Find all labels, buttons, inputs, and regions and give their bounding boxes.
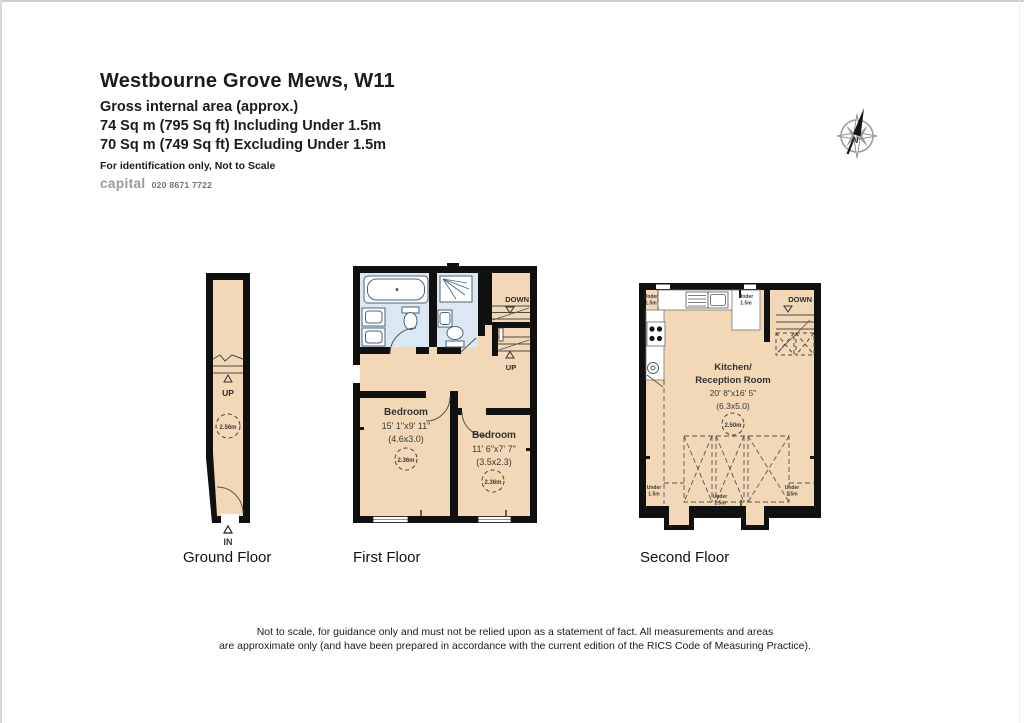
- ground-hallway: [213, 280, 243, 516]
- dormer-recess: [669, 506, 689, 525]
- agency-logo: capital: [100, 176, 146, 191]
- kitchen-dims-imperial: 20' 8"x16' 5": [710, 388, 757, 398]
- window-icon: [656, 285, 670, 290]
- svg-text:1.5m: 1.5m: [786, 492, 798, 498]
- compass-north-label: N: [852, 135, 859, 145]
- first-floor-plan: DOWN UP Bed: [352, 262, 542, 547]
- kitchen-sink-icon: [686, 292, 728, 308]
- window-icon: [744, 285, 756, 290]
- second-floor-plan: DOWN Kitchen/ Reception Room 20' 8"x16' …: [636, 278, 826, 534]
- bedroom-right-name: Bedroom: [472, 430, 516, 441]
- first-down-label: DOWN: [505, 295, 529, 304]
- disclaimer-line1: Not to scale, for guidance only and must…: [120, 625, 910, 639]
- bedroom-left-name: Bedroom: [384, 407, 428, 418]
- area-excluding: 70 Sq m (749 Sq ft) Excluding Under 1.5m: [100, 137, 395, 153]
- svg-text:1.5m: 1.5m: [648, 492, 660, 498]
- svg-text:Under: Under: [647, 485, 662, 491]
- entrance-opening: [221, 514, 239, 524]
- ground-floor-label: Ground Floor: [183, 549, 271, 566]
- bedroom-left-height-value: 2.36m: [397, 458, 414, 464]
- svg-text:Under: Under: [785, 485, 800, 491]
- second-down-label: DOWN: [788, 295, 812, 304]
- compass-icon: N: [830, 100, 886, 170]
- first-floor-label: First Floor: [353, 549, 421, 566]
- gross-area-subtitle: Gross internal area (approx.): [100, 99, 395, 115]
- toilet-icon: [446, 327, 464, 348]
- kitchen-name-line2: Reception Room: [695, 375, 770, 386]
- bathtub-icon: [364, 276, 428, 303]
- kitchen-name-line1: Kitchen/: [714, 362, 752, 373]
- landing-door: [499, 328, 503, 341]
- under-height-label: Under 1.5m: [644, 294, 659, 307]
- area-including: 74 Sq m (795 Sq ft) Including Under 1.5m: [100, 118, 395, 134]
- sink-icon: [438, 310, 452, 327]
- agency-phone: 020 8671 7722: [152, 180, 213, 190]
- shower-icon: [440, 276, 472, 302]
- window-icon: [373, 517, 408, 523]
- kitchen-height-value: 2.50m: [724, 423, 741, 429]
- disclaimer-line2: are approximate only (and have been prep…: [120, 639, 910, 653]
- svg-text:1.5m: 1.5m: [740, 301, 752, 307]
- svg-text:1.5m: 1.5m: [645, 301, 657, 307]
- svg-text:1.5m: 1.5m: [714, 501, 726, 507]
- header: Westbourne Grove Mews, W11 Gross interna…: [100, 70, 395, 172]
- under-height-label: Under 1.5m: [647, 485, 662, 498]
- page-title: Westbourne Grove Mews, W11: [100, 70, 395, 93]
- bedroom-right-dims-imperial: 11' 6"x7' 7": [472, 444, 516, 454]
- identification-note: For identification only, Not to Scale: [100, 160, 395, 172]
- ground-in-label: IN: [224, 537, 233, 546]
- agency-brand: capital 020 8671 7722: [100, 176, 212, 191]
- scan-edge-left: [0, 0, 2, 723]
- bedroom-left-dims-metric: (4.6x3.0): [388, 434, 424, 444]
- window-icon: [478, 517, 511, 523]
- scan-edge-right: [1019, 0, 1020, 723]
- scan-edge-top: [0, 0, 1024, 2]
- dormer-recess: [746, 506, 764, 525]
- bedroom-right-height-value: 2.36m: [484, 480, 501, 486]
- wall-recess: [353, 365, 360, 383]
- entrance-arrow-icon: [224, 526, 232, 533]
- under-height-label: Under 1.5m: [739, 294, 754, 307]
- svg-text:Under: Under: [713, 494, 728, 500]
- hob-icon: [647, 322, 665, 346]
- ground-up-label: UP: [222, 388, 234, 398]
- ground-floor-plan: UP 2.56m IN: [202, 268, 258, 546]
- under-height-label: Under 1.5m: [713, 494, 728, 507]
- kitchen-dims-metric: (6.3x5.0): [716, 401, 750, 411]
- bedroom-left-dims-imperial: 15' 1"x9' 11": [382, 421, 431, 431]
- svg-text:Under: Under: [644, 294, 659, 300]
- ground-height-value: 2.56m: [219, 425, 236, 431]
- disclaimer: Not to scale, for guidance only and must…: [120, 625, 910, 653]
- floorplan-page: Westbourne Grove Mews, W11 Gross interna…: [0, 0, 1024, 723]
- svg-text:Under: Under: [739, 294, 754, 300]
- bedroom-right-dims-metric: (3.5x2.3): [476, 457, 512, 467]
- under-height-label: Under 1.5m: [785, 485, 800, 498]
- first-up-label: UP: [506, 363, 516, 372]
- second-floor-label: Second Floor: [640, 549, 729, 566]
